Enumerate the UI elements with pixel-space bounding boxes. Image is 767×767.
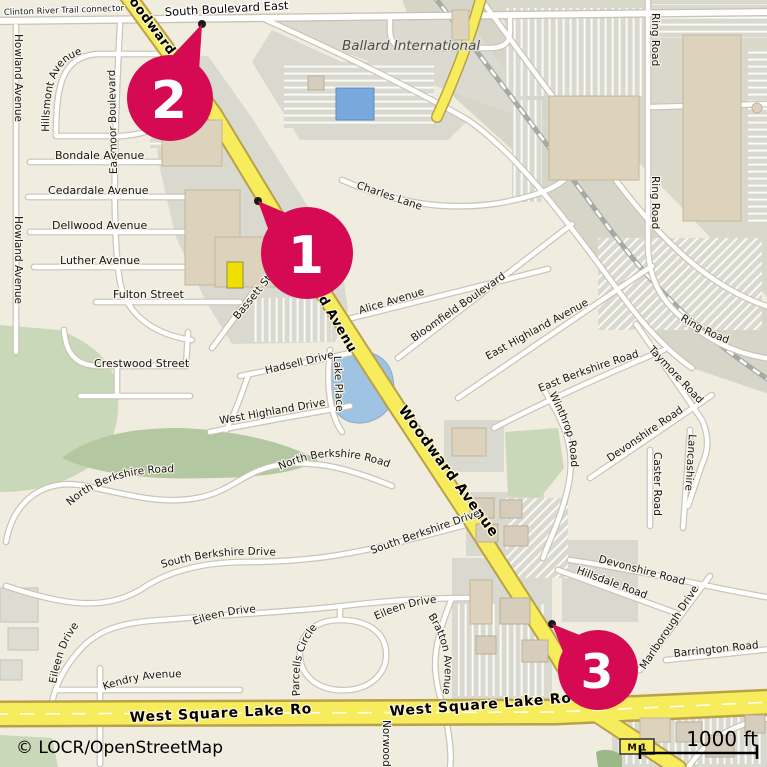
street-label-crestwood: Crestwood Street [94, 357, 190, 370]
street-label-cedardale: Cedardale Avenue [48, 184, 149, 197]
street-label-ring-road-1: Ring Road [649, 13, 661, 66]
street-label-caster: Caster Road [651, 452, 663, 516]
highlighted-poi-building [227, 262, 243, 288]
street-label-norwood: Norwood [380, 720, 392, 767]
marker-3-number: 3 [581, 645, 614, 700]
street-label-howland-2: Howland Avenue [12, 216, 24, 304]
street-label-lake-place: Lake Place [331, 356, 345, 412]
water-basin [336, 88, 374, 120]
street-label-ring-road-2: Ring Road [649, 176, 661, 229]
area-label-ballard-international: Ballard International [342, 38, 480, 54]
marker-2-number: 2 [151, 71, 187, 131]
marker-1-number: 1 [288, 226, 324, 286]
map-container: Clinton River Trail connector South Boul… [0, 0, 767, 767]
map-canvas[interactable]: Clinton River Trail connector South Boul… [0, 0, 767, 767]
scale-label: 1000 ft [686, 727, 758, 751]
street-label-luther: Luther Avenue [60, 254, 140, 267]
attribution: © LOCR/OpenStreetMap [16, 738, 223, 758]
street-label-howland-1: Howland Avenue [12, 34, 24, 122]
street-label-bondale: Bondale Avenue [55, 149, 145, 162]
street-label-fulton: Fulton Street [113, 288, 184, 301]
street-label-dellwood: Dellwood Avenue [52, 219, 148, 232]
